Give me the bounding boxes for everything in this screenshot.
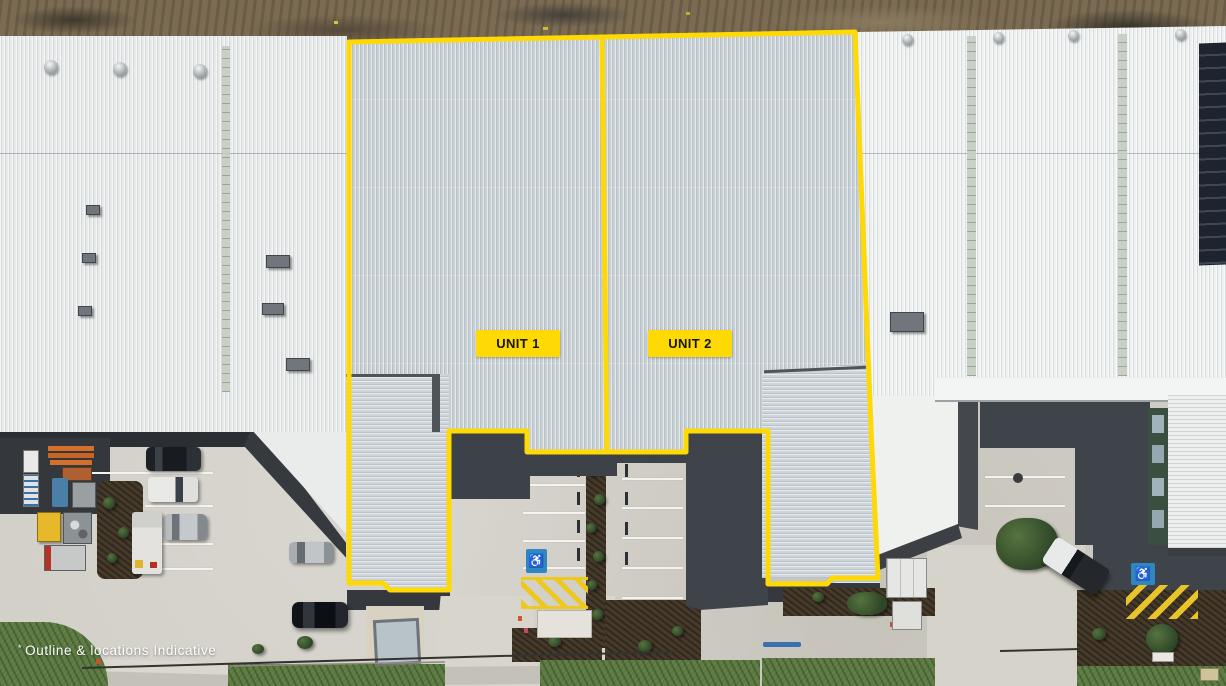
- disclaimer-asterisk: *: [18, 643, 22, 653]
- unit-outline-overlay: [0, 0, 1226, 686]
- disclaimer-body: Outline & locations Indicative: [25, 643, 216, 658]
- disclaimer-text: *Outline & locations Indicative: [18, 643, 216, 658]
- unit-divider-line: [602, 35, 607, 450]
- unit2-label: UNIT 2: [648, 330, 732, 357]
- unit2-label-text: UNIT 2: [668, 336, 712, 351]
- unit-boundary-outline: [349, 32, 878, 590]
- unit1-label-text: UNIT 1: [496, 336, 540, 351]
- aerial-photo: ♿ ♿: [0, 0, 1226, 686]
- unit1-label: UNIT 1: [476, 330, 560, 357]
